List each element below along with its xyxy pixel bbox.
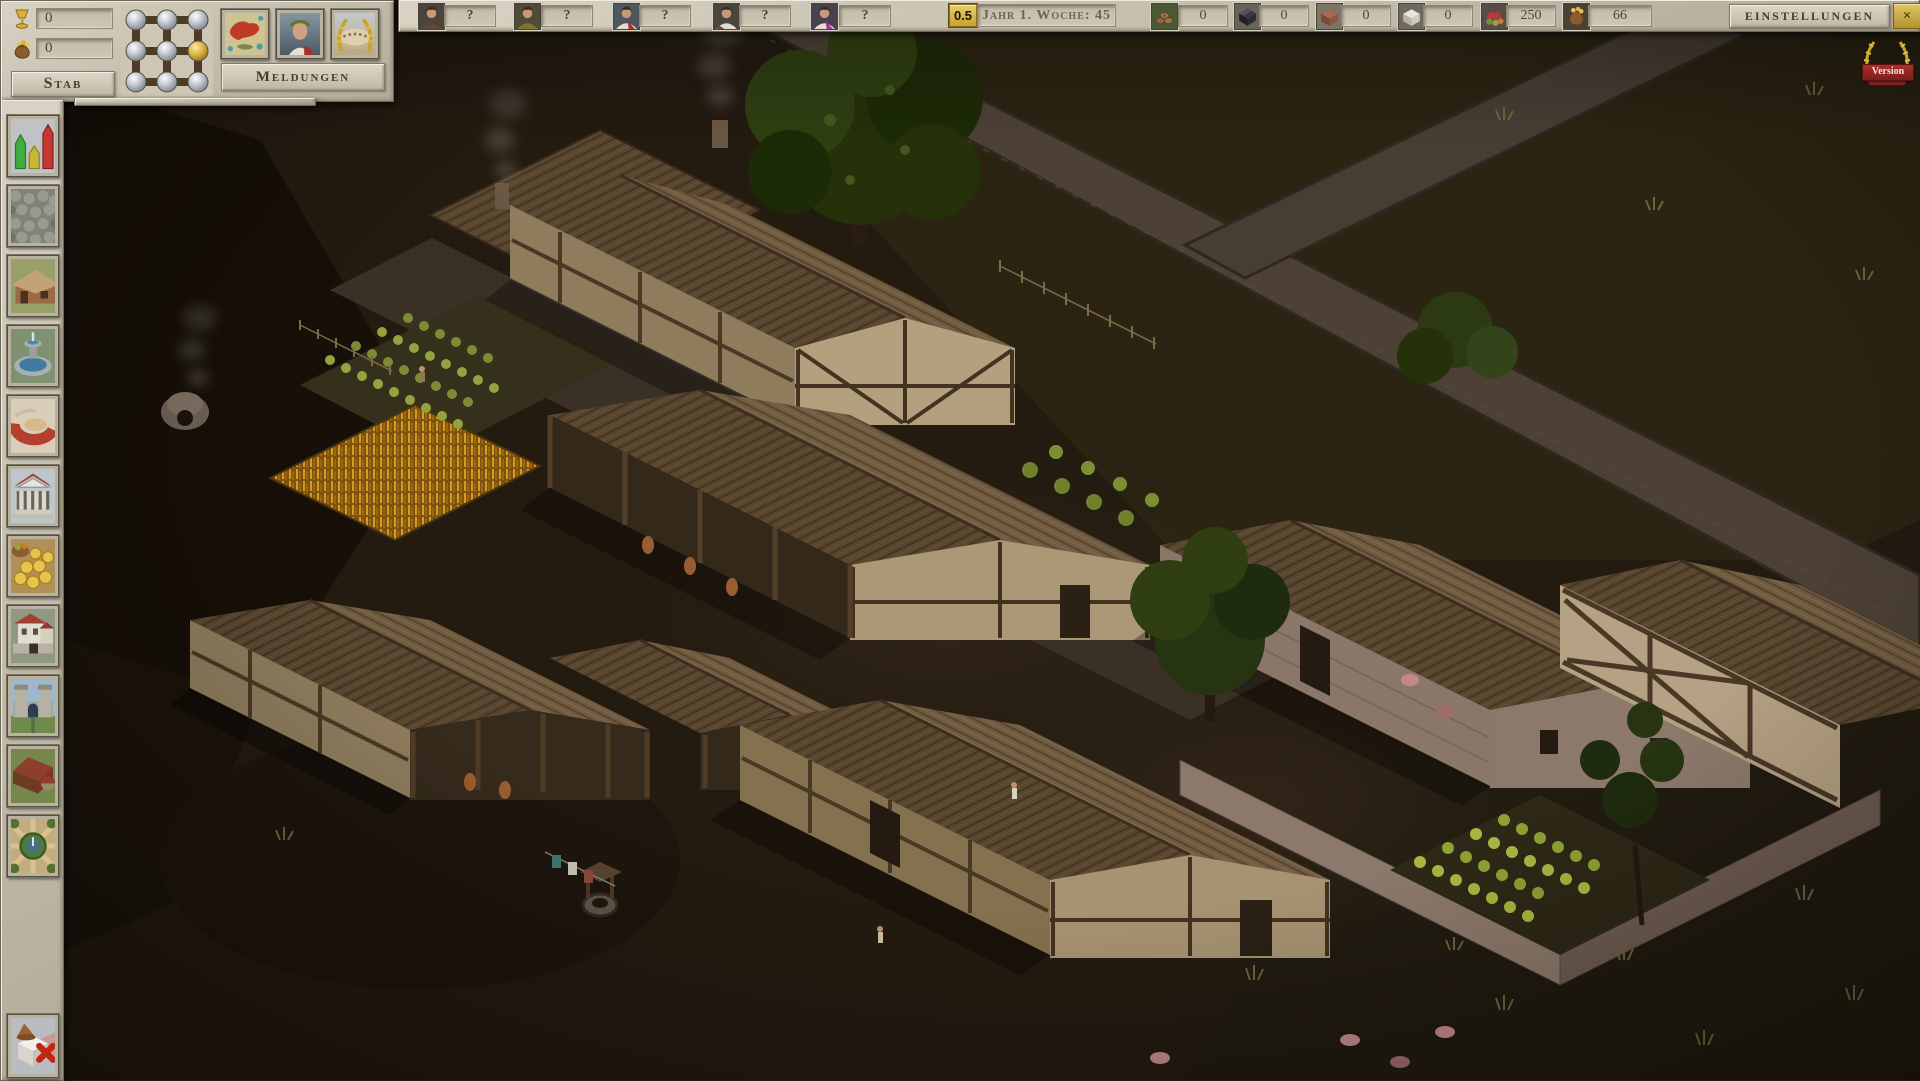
advisor-portrait-icon[interactable]: [418, 3, 445, 30]
settings-button[interactable]: Einstellungen: [1729, 4, 1890, 28]
advisor-slot[interactable]: ?: [541, 5, 593, 27]
game-world-view[interactable]: [0, 0, 1920, 1080]
staff-panel: 0 0 Stab: [0, 0, 394, 102]
temple-icon: [8, 466, 58, 526]
advisor-slot[interactable]: ?: [639, 5, 691, 27]
messages-panel: Meldungen: [219, 5, 385, 97]
gold-count: 66: [1588, 5, 1652, 27]
mill-game-board[interactable]: [121, 6, 213, 96]
meldungen-button[interactable]: Meldungen: [221, 63, 385, 91]
sidebar-item-demolish[interactable]: [7, 1014, 59, 1078]
coal-icon: [1234, 3, 1261, 30]
trophy-count: 0: [36, 8, 113, 29]
close-button[interactable]: ×: [1893, 3, 1920, 29]
advisor-slot[interactable]: ?: [444, 5, 496, 27]
sidebar-item-housing[interactable]: [7, 255, 59, 317]
sidebar-item-temple[interactable]: [7, 465, 59, 527]
stab-button[interactable]: Stab: [11, 71, 115, 97]
moneybag-icon: [11, 38, 33, 60]
city-gate-icon: [8, 676, 58, 736]
advisor-portrait-icon[interactable]: [811, 3, 838, 30]
build-sidebar: [0, 100, 64, 1081]
food-icon: [1481, 3, 1508, 30]
arena-wreath-icon[interactable]: [331, 9, 379, 59]
advisor-portrait-icon[interactable]: [713, 3, 740, 30]
date-display: Jahr 1. Woche: 45: [977, 4, 1116, 27]
food-count: 250: [1506, 5, 1556, 27]
sidebar-item-estate[interactable]: [7, 605, 59, 667]
wood-icon: [1151, 3, 1178, 30]
advisor-portrait-icon[interactable]: [514, 3, 541, 30]
sidebar-item-farm[interactable]: [7, 745, 59, 807]
estate-icon: [8, 606, 58, 666]
marble-icon: [1398, 3, 1425, 30]
gold-icon: [1563, 3, 1590, 30]
version-label: Version: [1862, 64, 1914, 81]
emperor-portrait-icon[interactable]: [276, 9, 324, 59]
sidebar-item-city-gate[interactable]: [7, 675, 59, 737]
staff-row-gold: 0: [9, 36, 115, 62]
roads-icon: [8, 186, 58, 246]
staff-row-trophy: 0: [9, 6, 115, 32]
marble-count: 0: [1423, 5, 1473, 27]
gold-stash-count: 0: [36, 38, 113, 59]
top-bar: ? ? ? ? ? 0.5 Jahr 1. Woche: 45 0 0 0 0 …: [398, 0, 1920, 32]
advisor-slot[interactable]: ?: [739, 5, 791, 27]
garden-icon: [8, 816, 58, 876]
version-badge: Version: [1858, 36, 1916, 88]
housing-icon: [8, 256, 58, 316]
sidebar-item-arena[interactable]: [7, 395, 59, 457]
farm-icon: [8, 746, 58, 806]
goblet-icon: [11, 8, 33, 30]
empire-map-icon[interactable]: [221, 9, 269, 59]
fountain-icon: [8, 326, 58, 386]
wood-count: 0: [1178, 5, 1228, 27]
sidebar-item-statistics[interactable]: [7, 115, 59, 177]
game-speed-indicator[interactable]: 0.5: [949, 4, 977, 27]
market-icon: [8, 536, 58, 596]
sidebar-item-fountain[interactable]: [7, 325, 59, 387]
sidebar-item-roads[interactable]: [7, 185, 59, 247]
advisor-slot[interactable]: ?: [839, 5, 891, 27]
sidebar-item-garden[interactable]: [7, 815, 59, 877]
demolish-icon: [8, 1015, 58, 1077]
arena-icon: [8, 396, 58, 456]
coal-count: 0: [1259, 5, 1309, 27]
advisor-portrait-icon[interactable]: [613, 3, 640, 30]
brick-icon: [1316, 3, 1343, 30]
sidebar-item-market[interactable]: [7, 535, 59, 597]
statistics-icon: [8, 116, 58, 176]
brick-count: 0: [1341, 5, 1391, 27]
panel-lip: [74, 98, 316, 106]
